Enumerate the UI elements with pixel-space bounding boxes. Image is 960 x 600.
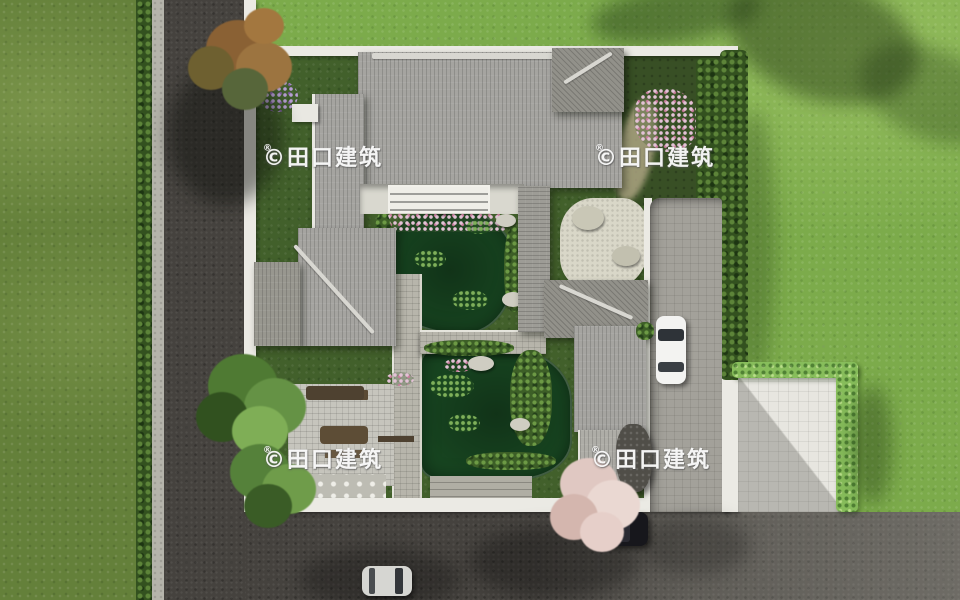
road-shadow-3 xyxy=(640,516,750,576)
silver-car-rear-window xyxy=(369,568,375,594)
west-wing-annex-roof xyxy=(254,262,300,346)
water-lilies-4 xyxy=(448,414,480,432)
pond-rock-4 xyxy=(510,418,530,431)
west-walkway xyxy=(392,274,422,508)
aerial-site-plan: ©田口建筑® ©田口建筑® ©田口建筑® ©田口建筑® xyxy=(0,0,960,600)
pink-canopy-4 xyxy=(580,512,624,552)
watermark-text: ©田口建筑 xyxy=(263,442,383,474)
watermark-top-left: ©田口建筑® xyxy=(263,140,274,165)
roadside-hedge xyxy=(136,0,152,600)
silver-car-windshield xyxy=(395,568,403,594)
watermark-text: ©田口建筑 xyxy=(591,442,711,474)
forecourt-hedge-shadow xyxy=(852,385,892,505)
water-lilies-2 xyxy=(452,290,488,310)
white-car-windshield xyxy=(658,329,684,341)
west-wing-roof xyxy=(298,228,396,346)
water-lilies-3 xyxy=(430,374,474,398)
autumn-tree xyxy=(178,2,304,118)
pergola xyxy=(388,185,490,213)
gate-shrub xyxy=(636,322,654,340)
watermark-bottom-left: ©田口建筑® xyxy=(263,442,274,467)
pond-rock-3 xyxy=(468,356,494,371)
water-lilies-5 xyxy=(466,220,492,234)
pond-rock-1 xyxy=(496,214,516,227)
east-wing-roof xyxy=(574,326,646,432)
entry-forecourt xyxy=(738,368,850,512)
outer-hedge-east xyxy=(720,50,748,380)
pond-shore-plants-3 xyxy=(510,350,552,446)
watermark-bottom-right: ©田口建筑® xyxy=(591,442,602,467)
silver-car xyxy=(362,566,412,596)
water-lilies-1 xyxy=(414,250,446,268)
watermark-top-right: ©田口建筑® xyxy=(595,140,606,165)
patio-stone-2 xyxy=(612,246,640,266)
watermark-text: ©田口建筑 xyxy=(263,140,383,172)
white-car-rear-window xyxy=(658,362,684,372)
watermark-text: ©田口建筑 xyxy=(595,140,715,172)
sw2-canopy-3 xyxy=(244,484,292,528)
pond-shore-plants-4 xyxy=(424,340,514,356)
white-car xyxy=(656,316,686,384)
shore-flowers-1 xyxy=(386,372,414,386)
patio-stone-1 xyxy=(572,206,604,230)
west-lawn xyxy=(0,0,152,600)
autumn-canopy-4 xyxy=(222,68,268,110)
pond-shore-plants-5 xyxy=(466,452,556,470)
inner-hedge-northeast xyxy=(696,58,720,203)
autumn-canopy-5 xyxy=(244,8,284,44)
